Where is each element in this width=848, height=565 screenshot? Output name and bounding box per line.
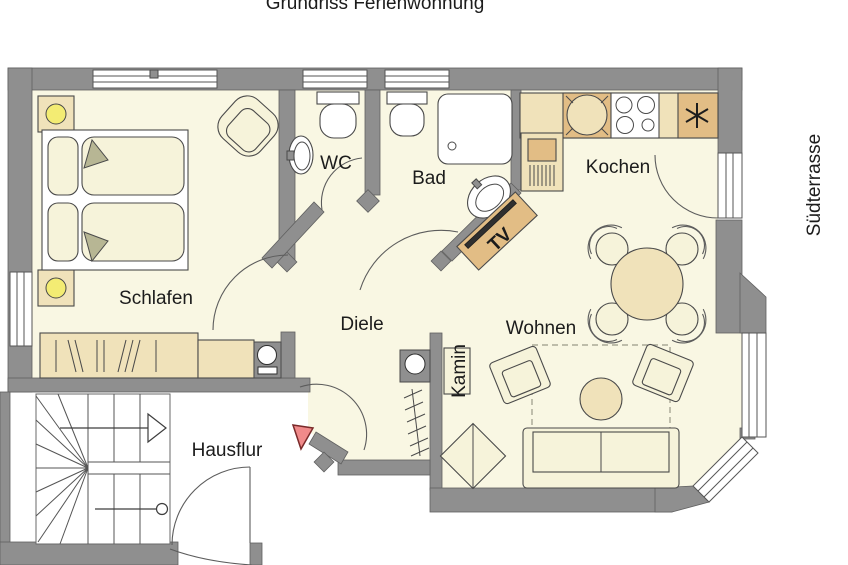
entrance-marker-icon (293, 425, 313, 449)
toilet-icon (390, 104, 424, 136)
building-door-arc (170, 549, 252, 565)
label-schlafen: Schlafen (119, 288, 193, 309)
boiler-icon (400, 350, 430, 382)
washer-icon (254, 342, 281, 378)
coffee-table-icon (580, 378, 622, 420)
duvet-icon (82, 137, 184, 195)
label-wc: WC (320, 153, 352, 174)
cabinet-icon (198, 340, 254, 378)
pillow-icon (48, 137, 78, 195)
sofa-icon (523, 428, 679, 488)
fridge-vents (530, 165, 554, 186)
stair-post-icon (157, 504, 168, 515)
label-suedterrasse: Südterrasse (804, 134, 825, 236)
hall-door-arc (172, 467, 250, 545)
shower-icon (438, 94, 512, 164)
floorplan-drawing: Grundriss Ferienwohnung Schlafen WC Bad … (0, 0, 848, 565)
staircase-icon (36, 394, 170, 544)
label-hausflur: Hausflur (192, 440, 263, 461)
label-kamin: Kamin (449, 344, 470, 398)
label-wohnen: Wohnen (506, 318, 576, 339)
toilet-tank-icon (387, 92, 427, 104)
kitchen-sink-icon (567, 95, 607, 135)
toilet-tank-icon (317, 92, 359, 104)
tap-icon (287, 151, 294, 160)
page-title: Grundriss Ferienwohnung (266, 0, 485, 14)
label-diele: Diele (340, 314, 383, 335)
dining-table-icon (611, 248, 683, 320)
label-bad: Bad (412, 168, 446, 189)
toilet-icon (320, 104, 356, 138)
lamp-icon (46, 278, 66, 298)
lamp-icon (46, 104, 66, 124)
floorplan-page: Grundriss Ferienwohnung Schlafen WC Bad … (0, 0, 848, 565)
wardrobe-icon (40, 333, 198, 378)
pillow-icon (48, 203, 78, 261)
label-kochen: Kochen (586, 157, 650, 178)
